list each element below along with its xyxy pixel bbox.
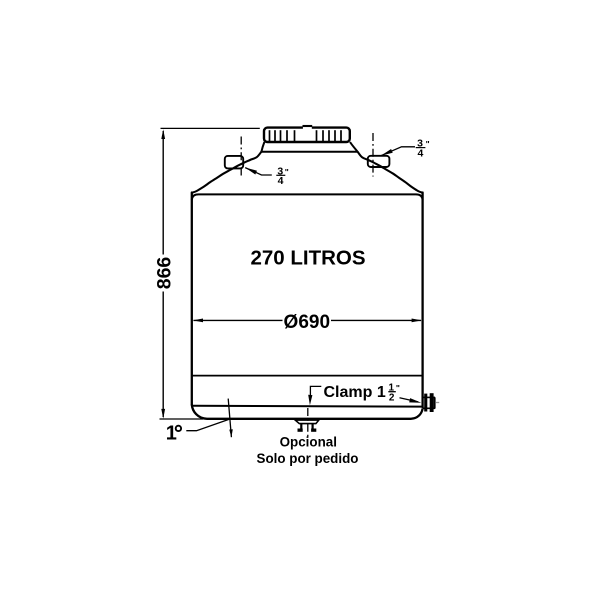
svg-text:": " [426,139,430,149]
svg-text:": " [396,383,400,393]
svg-text:270 LITROS: 270 LITROS [250,246,365,269]
svg-text:4: 4 [417,147,423,159]
svg-text:Ø690: Ø690 [284,312,330,333]
svg-text:Opcional: Opcional [280,435,337,450]
svg-text:2: 2 [389,393,395,404]
svg-text:1: 1 [166,422,177,444]
svg-text:Clamp 1: Clamp 1 [324,384,386,401]
svg-text:866: 866 [154,257,176,290]
svg-text:": " [285,167,289,177]
svg-text:Solo por pedido: Solo por pedido [257,451,359,466]
svg-text:4: 4 [278,175,284,187]
